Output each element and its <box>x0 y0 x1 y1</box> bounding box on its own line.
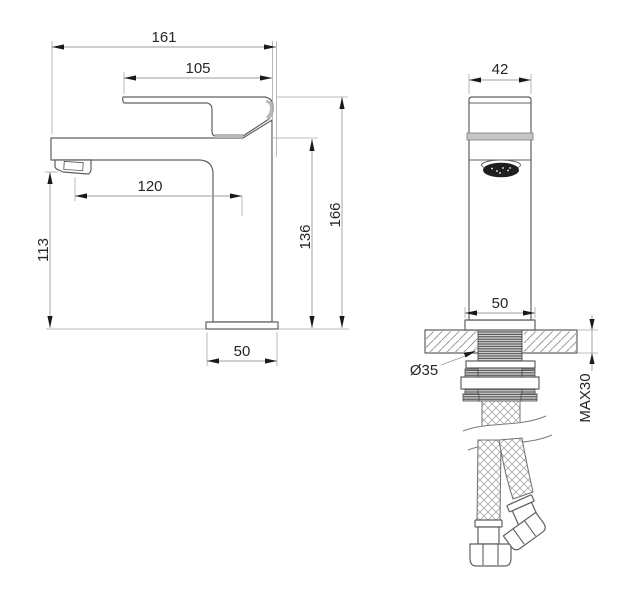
faucet-technical-drawing: 161 105 120 113 <box>0 0 631 600</box>
dim-spout-height-label: 113 <box>35 238 52 262</box>
hose-right <box>499 438 533 499</box>
base-plate-side <box>206 322 278 329</box>
dim-base-width-side-label: 50 <box>234 343 251 360</box>
dim-spout-reach-label: 120 <box>137 178 162 195</box>
dim-max-thickness-label: MAX30 <box>577 373 594 422</box>
base-plate-front <box>465 320 535 330</box>
front-view: 42 50 Ø35 MAX30 <box>410 61 598 566</box>
dim-body-height-label: 136 <box>297 224 314 249</box>
drawing-canvas: 161 105 120 113 <box>0 0 631 600</box>
aerator-insert <box>64 161 84 170</box>
dim-handle-length-label: 105 <box>185 60 210 77</box>
side-view: 161 105 120 113 <box>35 29 349 366</box>
nut-foot-right <box>521 394 537 401</box>
joint-band <box>467 133 533 140</box>
dim-body-height: 136 <box>273 138 318 328</box>
handle-lever <box>123 97 273 136</box>
dim-overall-height: 166 <box>277 97 348 328</box>
dim-overall-length-label: 161 <box>151 29 176 46</box>
mounting-washer <box>466 361 535 368</box>
nut-foot-left <box>463 394 479 401</box>
dim-body-width-label: 42 <box>492 61 509 78</box>
dim-spout-height: 113 <box>35 172 58 328</box>
dim-base-width-side: 50 <box>207 332 277 366</box>
faucet-body-side <box>51 120 272 322</box>
hose-left-nut <box>470 544 511 566</box>
dim-max-thickness: MAX30 <box>577 315 598 423</box>
countertop-hatch-right <box>524 331 576 352</box>
body-column-front <box>469 97 531 320</box>
countertop-hatch-left <box>426 331 477 352</box>
dim-hole-diameter-label: Ø35 <box>410 362 438 379</box>
supply-hoses <box>462 401 552 566</box>
dim-base-width-front-label: 50 <box>492 295 509 312</box>
dim-body-width: 42 <box>469 61 531 94</box>
hose-left <box>477 440 501 522</box>
mounting-nut-bar <box>461 377 539 389</box>
dim-handle-length: 105 <box>124 60 272 94</box>
hose-left-ferrule <box>478 527 499 544</box>
hose-left-ferrule-collar <box>475 520 502 527</box>
dim-overall-height-label: 166 <box>327 202 344 227</box>
aerator-front <box>482 160 521 177</box>
handle-joint-accent <box>215 134 243 138</box>
